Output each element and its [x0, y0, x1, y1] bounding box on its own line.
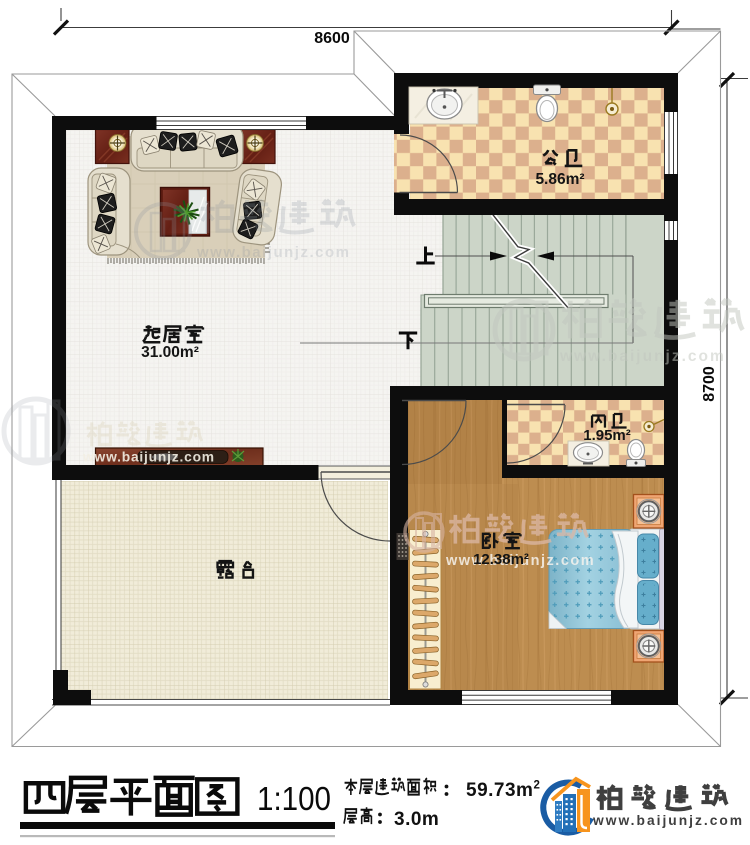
- svg-text:1:100: 1:100: [257, 780, 331, 817]
- svg-text:31.00m²: 31.00m²: [141, 344, 199, 361]
- svg-text:12.38m²: 12.38m²: [473, 551, 529, 568]
- svg-text:8700: 8700: [701, 366, 718, 402]
- svg-text:www.baijunjz.com: www.baijunjz.com: [592, 813, 744, 828]
- svg-text:www.baijunjz.com: www.baijunjz.com: [559, 348, 726, 365]
- svg-text:5.86m²: 5.86m²: [535, 171, 584, 188]
- svg-text:1.95m²: 1.95m²: [583, 427, 631, 444]
- svg-text:www.baijunjz.com: www.baijunjz.com: [82, 450, 215, 465]
- svg-text:8600: 8600: [314, 30, 350, 47]
- svg-text:www.baijunjz.com: www.baijunjz.com: [196, 244, 350, 261]
- svg-text:59.73m2: 59.73m2: [466, 780, 540, 802]
- svg-text:3.0m: 3.0m: [394, 809, 439, 830]
